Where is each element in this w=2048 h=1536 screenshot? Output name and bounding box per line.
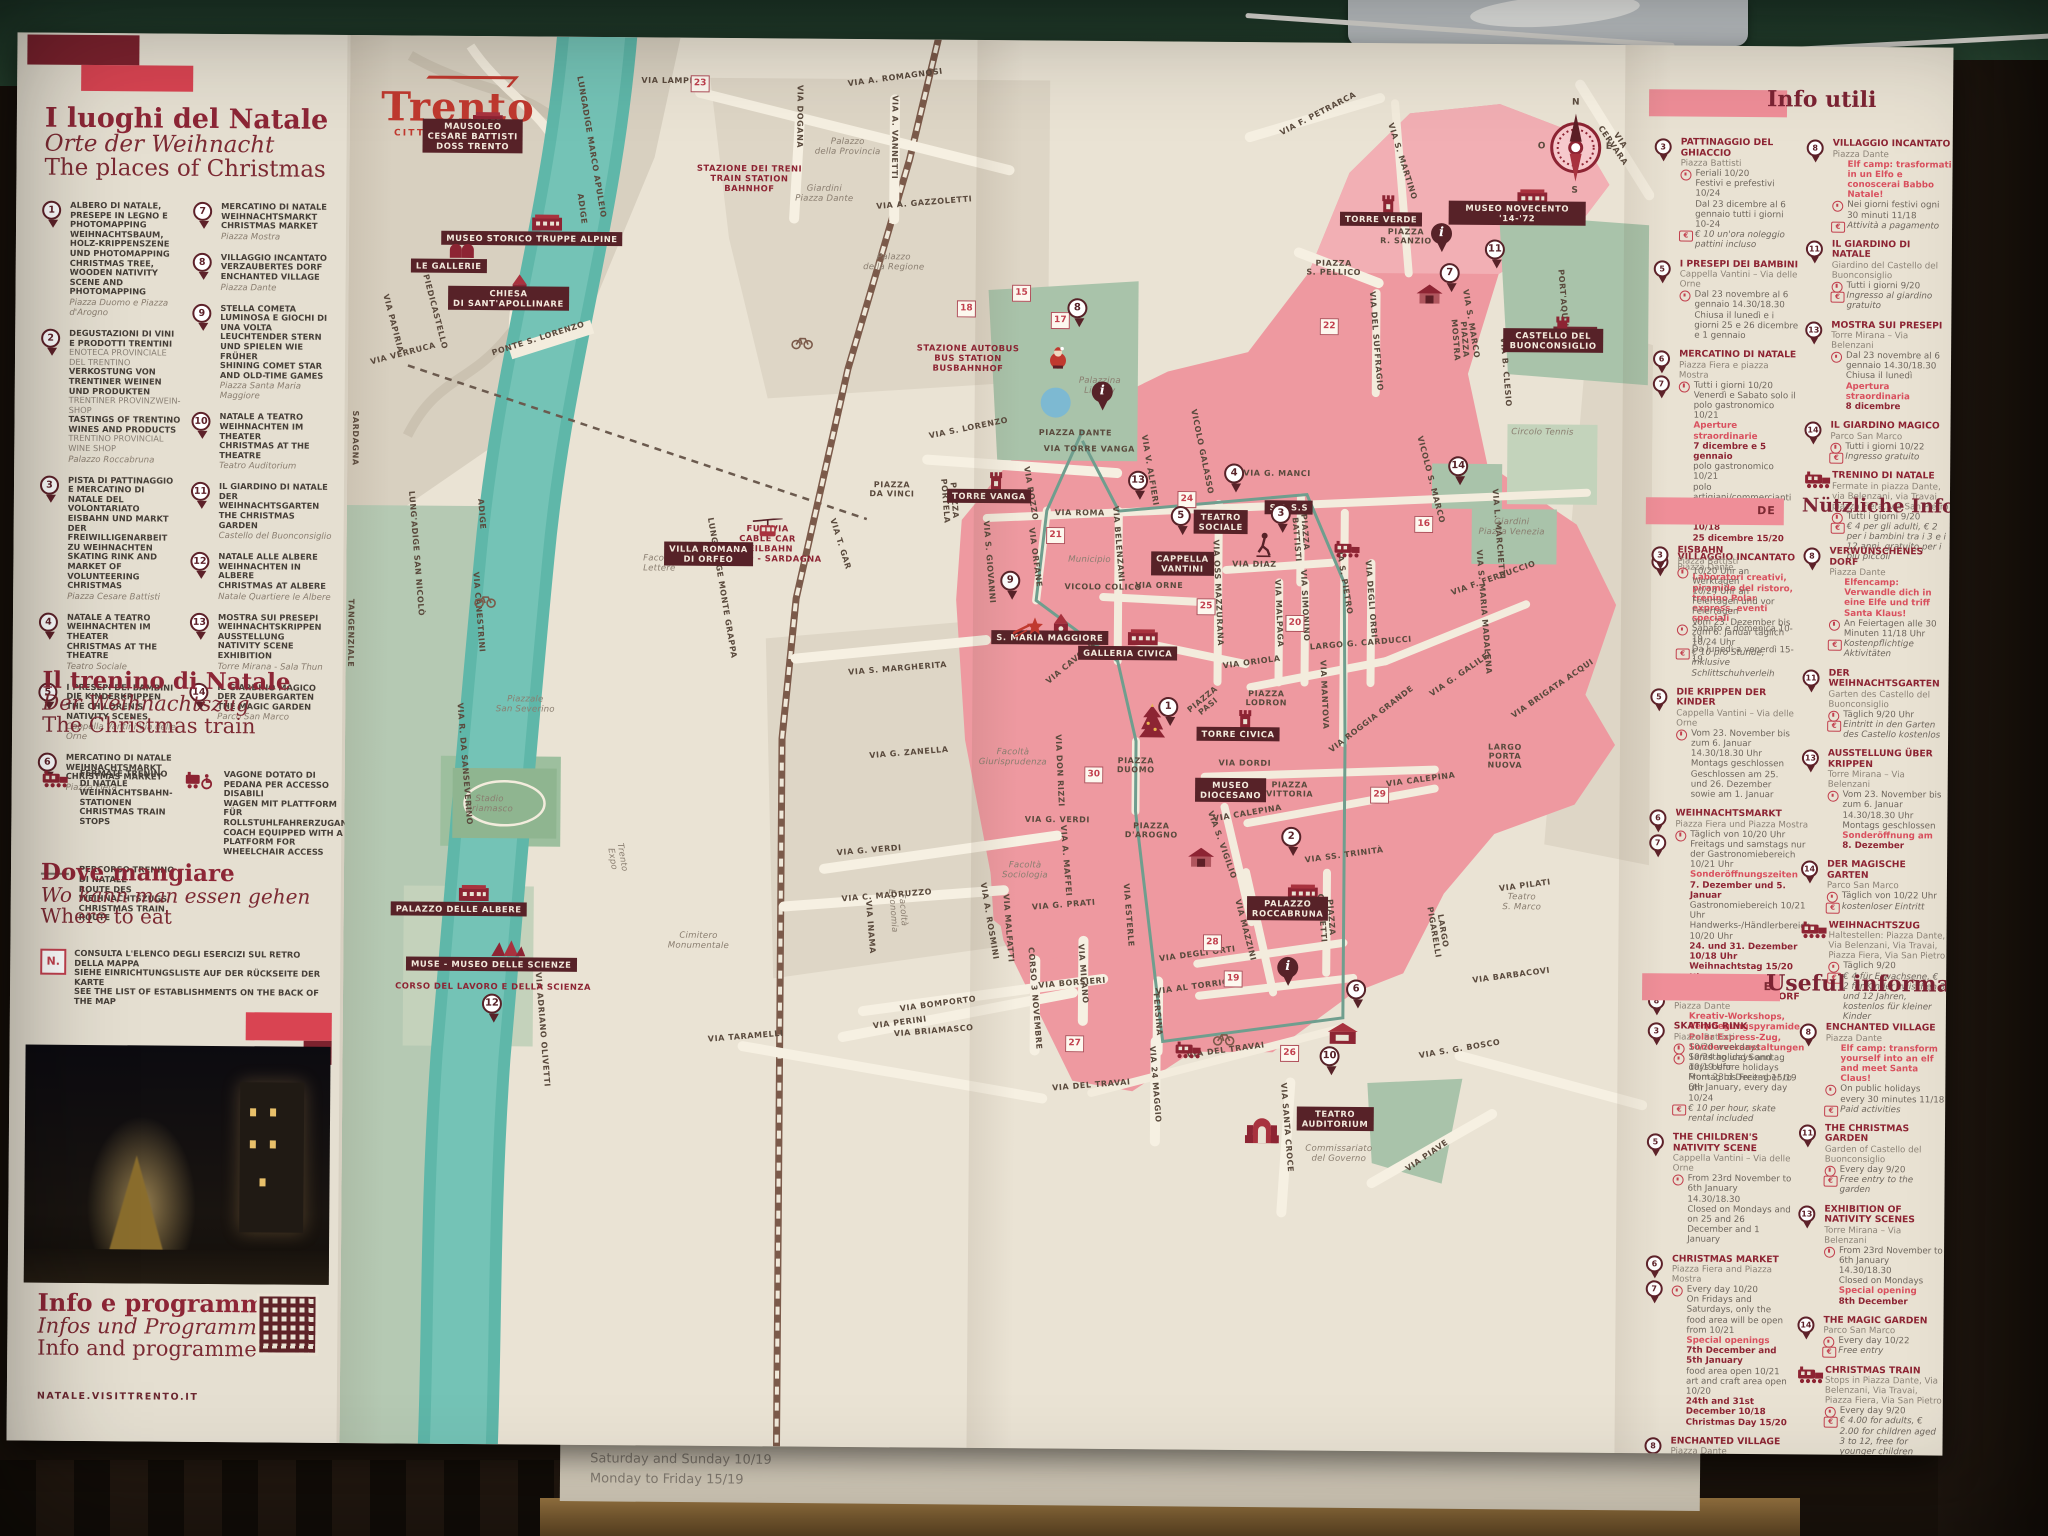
place-texts: VILLAGGIO INCANTATOVERZAUBERTES DORFENCH… (221, 253, 334, 294)
info-item-line: €Paid activities (1825, 1104, 1945, 1115)
euro-icon: € (1831, 221, 1845, 232)
street-label: Facoltà Giurisprudenza (979, 747, 1047, 768)
info-item-markers: 5 (1653, 259, 1674, 341)
street-label: Commissariato del Governo (1305, 1144, 1372, 1165)
info-item-line: €€ 10 pro Stunde, inklusive Schlittschuh… (1677, 648, 1797, 680)
place-text-line: Piazza Mostra (221, 232, 334, 243)
info-item: 3PATTINAGGIO DEL GHIACCIOPiazza Battisti… (1654, 137, 1801, 251)
eat-title: Dove mangiare Wo kann man essen gehen Wh… (41, 861, 311, 929)
landmark-badge: VILLA ROMANA DI ORFEO (664, 542, 753, 567)
place-texts: STELLA COMETA LUMINOSA E GIOCHI DI UNA V… (220, 304, 334, 403)
info-item-pin: 5 (1654, 260, 1672, 283)
info-item-pin: 6 (1649, 809, 1667, 832)
info-item-line: Chiusa il lunedì e i giorni 25 e 26 dice… (1679, 310, 1799, 342)
info-item-markers: 8 (1803, 546, 1824, 659)
info-item-line: Christmas Day 15/20 (1671, 1417, 1791, 1428)
train-wheelchair-icon (186, 772, 216, 790)
info-item-title: DIE KRIPPEN DER KINDER (1676, 687, 1796, 709)
place-texts: MERCATINO DI NATALEWEIHNACHTSMARKTCHRIST… (221, 202, 334, 243)
train-title-en: The Christmas train (42, 714, 290, 738)
map-place-pin: 9 (1000, 571, 1022, 600)
info-item-markers: 5 (1650, 687, 1671, 800)
place-text-line: EISBAHN UND MARKT DER FREIWILLIGENARBEIT… (67, 514, 180, 553)
landmark-badge: CASTELLO DEL BUONCONSIGLIO (1503, 328, 1603, 353)
info-point-pin: i (1277, 957, 1299, 987)
qr-code (259, 1296, 315, 1352)
place-text-line: TASTINGS OF TRENTINO WINES AND PRODUCTS (68, 415, 181, 435)
info-item-line: €Kostenpflichtige Aktivitäten (1829, 639, 1949, 660)
street-label: VIA DIAZ (1232, 559, 1277, 568)
poi-label: STAZIONE AUTOBUS BUS STATION BUSBAHNHOF (917, 342, 1020, 373)
landmark-badge: LE GALLERIE (411, 259, 487, 274)
section-title-it: Info utili (1767, 86, 1877, 113)
map-number-square: 23 (691, 75, 710, 92)
info-item-pin: 3 (1655, 138, 1673, 161)
info-item-line: Apertura straordinaria (1831, 381, 1951, 402)
street-label: VIA DORDI (1218, 758, 1271, 767)
map-place-pin: 2 (1281, 827, 1303, 856)
info-item: 14DER MAGISCHE GARTENParco San MarcoTägl… (1801, 860, 1947, 913)
info-item-line: 8 dicembre (1831, 402, 1951, 413)
euro-icon: € (1824, 1105, 1838, 1116)
info-item-line: €Attività a pagamento (1832, 220, 1952, 231)
website-url: NATALE.VISITTRENTO.IT (37, 1391, 199, 1403)
street-label: VIA G. VERDI (1025, 815, 1090, 825)
place-texts: ALBERO DI NATALE, PRESEPE IN LEGNO E PHO… (69, 201, 183, 319)
info-point-letter: i (1092, 381, 1113, 402)
place-text-line: CHRISTMAS AT THE THEATRE (219, 441, 332, 461)
info-item-body: ENCHANTED VILLAGEPiazza DanteElf camp: t… (1825, 1023, 1946, 1116)
landmark-badge: MUSE - MUSEO DELLE SCIENZE (406, 956, 577, 971)
map-pin-number: 12 (482, 994, 502, 1014)
place-pin-number: 9 (192, 303, 211, 322)
legend-place-item: 4NATALE A TEATROWEIHNACHTEN IM THEATERCH… (39, 612, 180, 672)
place-text-line: CHRISTMAS TREE, WOODEN NATIVITY SCENE AN… (69, 258, 182, 297)
info-item-pin: 5 (1650, 688, 1668, 711)
info-item-markers: 14 (1801, 860, 1821, 912)
street-label: PIAZZA DA VINCI (869, 480, 914, 498)
landmark-badge: PALAZZO DELLE ALBERE (391, 901, 527, 916)
info-item-line: Dal 23 novembre al 6 gennaio 14.30/18.30 (1831, 351, 1951, 372)
info-item-pin-number: 8 (1800, 1023, 1817, 1040)
info-item-place: Cappella Vantini – Via delle Orne (1676, 708, 1796, 729)
euro-icon: € (1827, 720, 1841, 731)
info-item-pin-number: 7 (1649, 834, 1666, 851)
street-label: VIA ROMA (1055, 508, 1105, 517)
map-place-pin: 10 (1319, 1046, 1341, 1075)
info-item-markers: 3 (1654, 137, 1675, 250)
place-pin-number: 4 (39, 612, 58, 631)
info-item-pin-number: 7 (1653, 375, 1670, 392)
info-item-body: THE CHRISTMAS GARDENGarden of Castello d… (1824, 1124, 1945, 1197)
place-text-line: CHRISTMAS AT THE THEATRE (67, 641, 180, 661)
map-number-square: 16 (1414, 516, 1433, 533)
map-base (339, 35, 1655, 1453)
info-item-title: MERCATINO DI NATALE (1679, 350, 1799, 361)
info-item-title: PATTINAGGIO DEL GHIACCIO (1681, 137, 1801, 159)
info-item-pin: 7 (1653, 375, 1671, 398)
map-place-pin: 12 (482, 994, 504, 1023)
place-texts: NATALE A TEATROWEIHNACHTEN IM THEATERCHR… (219, 412, 332, 472)
street-label: Facoltà Sociologia (1002, 860, 1048, 880)
info-item: 14THE MAGIC GARDENParco San MarcoEvery d… (1797, 1315, 1943, 1357)
places-title-en: The places of Christmas (44, 157, 328, 183)
street-label: VIA G. MANCI (1243, 469, 1311, 479)
street-label: VIA DOGANA (795, 85, 804, 148)
info-item-place: Torre Mirana – Via Belenzani (1831, 331, 1951, 352)
place-text-line: Piazza Cesare Battisti (67, 592, 180, 603)
info-item-pin: 6 (1653, 350, 1671, 373)
legend-place-item: 11IL GIARDINO DI NATALEDER WEIHNACHTSGAR… (191, 482, 332, 542)
place-pin: 7 (193, 202, 214, 229)
place-text-line: CHRISTMAS AT ALBERE (218, 581, 331, 591)
info-item-line: Freitags und samstags nur der Gastronomi… (1675, 839, 1811, 871)
info-point-letter: i (1277, 957, 1298, 978)
euro-icon: € (1828, 640, 1842, 651)
photo-tower (239, 1082, 304, 1232)
info-item-line: From 23rd November to 6th January 14.30/… (1672, 1174, 1792, 1206)
info-item-line: Elf camp: trasformati in un Elfo e conos… (1832, 159, 1952, 201)
street-label: PIAZZA LODRON (1246, 689, 1288, 707)
train-legend-line: COACH EQUIPPED WITH A PLATFORM FOR WHEEL… (223, 828, 354, 858)
place-pin: 4 (39, 612, 60, 639)
info-item-pin-number: 11 (1806, 240, 1823, 257)
info-item-line: Venerdì e Sabato solo il polo gastronomi… (1679, 390, 1799, 422)
euro-icon: € (1676, 649, 1690, 660)
train-legend-row: FERMATE TRENINO DI NATALEWEIHNACHTSBAHN-… (41, 769, 178, 856)
clock-icon (1831, 352, 1842, 363)
info-item-pin: 8 (1800, 1023, 1818, 1046)
info-item-line: Nei giorni festivi ogni 30 minuti 11/18 (1832, 200, 1952, 221)
place-pin-number: 13 (190, 612, 209, 631)
place-text-line: SKATING RINK AND MARKET OF VOLUNTEERING … (67, 552, 180, 591)
map-number-square: 25 (1197, 598, 1216, 615)
info-item-body: AUSSTELLUNG ÜBER KRIPPENTorre Mirana – V… (1827, 749, 1948, 852)
street-label: VIA A. VANNETTI (890, 95, 900, 179)
place-text-line: LEUCHTENDER STERN UND SPIELEN WIE FRÜHER (220, 332, 333, 362)
street-label: SARDAGNA (351, 410, 360, 465)
info-item-markers: 8 (1644, 1436, 1665, 1455)
landmark-badge: TORRE VERDE (1340, 212, 1422, 227)
train-legend-line: WAGEN MIT PLATTFORM FÜR ROLLSTUHLFAHRERZ… (223, 799, 354, 829)
train-wheelchair-icon (185, 770, 216, 857)
christmas-photo (24, 1045, 331, 1285)
street-label: VIA LAMPI (641, 76, 693, 85)
info-item-line: 10/24 Uhr an Feiertagen und vor Feiertag… (1677, 586, 1797, 618)
info-panel: Info utili 3PATTINAGGIO DEL GHIACCIOPiaz… (1644, 45, 1953, 1455)
info-item-body: DIE KRIPPEN DER KINDERCappella Vantini –… (1676, 687, 1797, 800)
info-item-pin: 11 (1802, 669, 1820, 692)
place-pin-number: 8 (193, 253, 212, 272)
info-item-body: DER WEIHNACHTSGARTENGarten des Castello … (1828, 668, 1949, 741)
info-item-markers: 14 (1797, 1315, 1817, 1356)
map-number-square: 26 (1280, 1045, 1299, 1062)
legend-place-item: 1ALBERO DI NATALE, PRESEPE IN LEGNO E PH… (41, 201, 183, 319)
place-text-line: DER WEIHNACHTSGARTEN (219, 492, 332, 512)
info-item-place: Cappella Vantini – Via delle Orne (1680, 270, 1800, 291)
info-item-pin-number: 3 (1651, 546, 1668, 563)
decor-block (246, 1012, 332, 1041)
compass-rose: N S E O (1543, 101, 1608, 193)
info-item-line: From 23rd December to 6th January, every… (1673, 1073, 1793, 1105)
info-item-line: 8. Dezember (1827, 841, 1947, 852)
place-pin: 3 (40, 475, 61, 502)
info-item: 3EISBAHNPiazza Battisti10/20 Uhr an Werk… (1651, 545, 1798, 679)
place-text-line: CHRISTMAS MARKET (221, 221, 334, 231)
info-item-line: Elf camp: transform yourself into an elf… (1825, 1043, 1945, 1085)
info-item-body: VILLAGGIO INCANTATOPiazza DanteElf camp:… (1832, 139, 1953, 232)
info-item-body: VERWUNSCHENES DORFPiazza DanteElfencamp:… (1829, 547, 1950, 661)
info-item-markers: 67 (1648, 808, 1669, 982)
landmark-badge: MUSEO NOVECENTO '14-'72 (1449, 201, 1586, 226)
street-label: PIAZZA R. SANZIO (1380, 227, 1432, 245)
place-pin-number: 11 (191, 482, 210, 501)
clock-icon (1676, 729, 1687, 740)
map-pin-number: 1 (1158, 697, 1178, 717)
euro-icon: € (1831, 523, 1845, 534)
place-text-line: Castello del Buonconsiglio (219, 531, 332, 542)
place-text-line: ALBERO DI NATALE, PRESEPE IN LEGNO E PHO… (70, 201, 183, 231)
train-icon (1800, 921, 1822, 942)
place-text-line: Piazza Dante (221, 283, 334, 294)
train-title: Il trenino di Natale Der Weihnachtszug T… (42, 669, 291, 739)
info-item-body: THE MAGIC GARDENParco San MarcoEvery day… (1823, 1315, 1943, 1357)
train-legend-line: CHRISTMAS TRAIN STOPS (79, 807, 177, 827)
map-number-square: 20 (1285, 615, 1304, 632)
map-pin-number: 13 (1128, 471, 1148, 491)
train-legend-line: VAGONE DOTATO DI PEDANA PER ACCESSO DISA… (224, 770, 355, 800)
info-item: 11DER WEIHNACHTSGARTENGarten des Castell… (1802, 668, 1949, 741)
street-label: Circolo Tennis (1511, 427, 1573, 437)
train-legend-texts: VAGONE DOTATO DI PEDANA PER ACCESSO DISA… (223, 770, 355, 857)
info-item-body: IL GIARDINO DI NATALEGiardino del Castel… (1831, 240, 1952, 313)
place-text-line: PISTA DI PATTINAGGIO E MERCATINO DI NATA… (68, 475, 181, 514)
trento-logo-mark (420, 76, 519, 88)
info-item-body: EISBAHNPiazza Battisti10/20 Uhr an Werkt… (1677, 545, 1798, 679)
info-item: 67CHRISTMAS MARKETPiazza Fiera and Piazz… (1645, 1254, 1792, 1428)
info-item-pin: 3 (1648, 1022, 1666, 1045)
info-item-line: Aperture straordinarie (1678, 421, 1798, 442)
euro-icon: € (1824, 1417, 1838, 1428)
poi-label: CORSO DEL LAVORO E DELLA SCIENZA (395, 980, 591, 992)
place-text-line: WEIHNACHTEN IM THEATER (219, 422, 332, 442)
info-item-line: Festivi e prefestivi 10/24 (1680, 179, 1800, 200)
place-text-line: STELLA COMETA LUMINOSA E GIOCHI DI UNA V… (220, 304, 333, 334)
map-number-square: 21 (1046, 527, 1065, 544)
info-item-line: Vom 23. Dezember bis zum 6. Januar tägli… (1677, 617, 1797, 649)
landmark-badge: MUSEO DIOCESANO (1195, 778, 1266, 803)
landmark-badge: S. MARIA MAGGIORE (991, 630, 1108, 645)
place-pin-number: 10 (191, 412, 210, 431)
info-item-line: art and craft area open 10/20 (1671, 1376, 1791, 1397)
info-item-pin-number: 11 (1802, 669, 1819, 686)
info-item-title: ENCHANTED VILLAGE (1826, 1023, 1946, 1034)
eat-note: N. CONSULTA L'ELENCO DEGLI ESERCIZI SUL … (40, 949, 320, 1009)
info-item-title: THE CHILDREN'S NATIVITY SCENE (1673, 1133, 1793, 1155)
landmark-badge: MAUSOLEO CESARE BATTISTI DOSS TRENTO (422, 119, 523, 154)
info-item-pin: 7 (1649, 834, 1667, 857)
legend-panel: I luoghi del Natale Orte der Weihnacht T… (7, 32, 351, 1443)
info-item-body: THE CHILDREN'S NATIVITY SCENECappella Va… (1672, 1133, 1793, 1246)
train-legend-line: WEIHNACHTSBAHN-STATIONEN (79, 788, 177, 808)
euro-icon: € (1672, 1104, 1686, 1115)
euro-icon: € (1826, 902, 1840, 913)
place-texts: PISTA DI PATTINAGGIO E MERCATINO DI NATA… (67, 475, 181, 602)
info-item: 11IL GIARDINO DI NATALEGiardino del Cast… (1805, 239, 1952, 312)
info-item-place: Garden of Castello del Buonconsiglio (1825, 1145, 1945, 1166)
info-item-pin: 3 (1651, 546, 1669, 569)
place-pin: 12 (190, 552, 211, 579)
info-item-pin: 5 (1647, 1133, 1665, 1156)
train-legend-texts: FERMATE TRENINO DI NATALEWEIHNACHTSBAHN-… (79, 769, 178, 856)
street-label: Teatro S. Marco (1502, 892, 1541, 912)
map-place-pin: 8 (1067, 298, 1089, 327)
info-item-markers: 13 (1798, 1204, 1819, 1306)
place-text-line: WEIHNACHTSBAUM, HOLZ-KRIPPENSZENE UND PH… (70, 230, 183, 260)
train-icon (1175, 1042, 1203, 1059)
info-item-line: 8th December (1824, 1296, 1944, 1307)
info-item: 8VILLAGGIO INCANTATOPiazza DanteElf camp… (1806, 138, 1953, 231)
info-item-pin-number: 8 (1807, 139, 1824, 156)
landmark-badge: PALAZZO ROCCABRUNA (1247, 896, 1329, 921)
info-item-place: Torre Mirana – Via Belenzani (1828, 770, 1948, 791)
info-item-markers: 14 (1804, 421, 1824, 462)
info-item-line: 10/24 holidays and days before holidays (1673, 1052, 1793, 1073)
info-item-title: DER WEIHNACHTSGARTEN (1828, 668, 1948, 690)
clock-icon (1673, 1175, 1684, 1186)
info-item-pin: 7 (1646, 1280, 1664, 1303)
euro-icon: € (1822, 1347, 1836, 1358)
place-text-line: DEGUSTAZIONI DI VINI E PRODOTTI TRENTINI (69, 329, 182, 349)
landmark-badge: CHIESA DI SANT'APOLLINARE (448, 286, 569, 311)
street-label: Cimitero Monumentale (668, 931, 729, 951)
info-item-markers: 67 (1645, 1254, 1666, 1427)
map-number-square: 29 (1370, 787, 1389, 804)
place-pin: 8 (193, 253, 214, 280)
info-item-pin: 6 (1646, 1255, 1664, 1278)
info-item: 14IL GIARDINO MAGICOParco San MarcoTutti… (1804, 421, 1950, 463)
info-item-line: 10/20 Uhr an Werktagen (1677, 566, 1797, 587)
clock-icon (1679, 291, 1690, 302)
info-item-pin-number: 6 (1653, 350, 1670, 367)
info-item-pin-number: 7 (1646, 1280, 1663, 1297)
map-place-pin: 11 (1485, 239, 1507, 268)
map-sheet: I luoghi del Natale Orte der Weihnacht T… (7, 32, 1954, 1455)
place-pin: 11 (191, 482, 212, 509)
info-item-markers: 11 (1802, 668, 1823, 740)
train-icon (1797, 1366, 1825, 1383)
landmark-badge: TORRE CIVICA (1197, 727, 1280, 742)
place-text-line: VERKOSTUNG VON TRENTINER WEINEN UND PROD… (69, 367, 182, 397)
map-pin-number: 4 (1224, 463, 1244, 483)
decor-block (27, 34, 139, 65)
legend-place-item: 8VILLAGGIO INCANTATOVERZAUBERTES DORFENC… (193, 253, 334, 294)
table-edge (1938, 60, 2048, 1536)
info-item-body: CHRISTMAS TRAINStops in Piazza Dante, Vi… (1824, 1365, 1943, 1455)
place-pin-number: 7 (193, 202, 212, 221)
place-text-line: NATIVITY SCENE EXHIBITION (218, 641, 331, 661)
info-item: 13MOSTRA SUI PRESEPITorre Mirana – Via B… (1805, 320, 1952, 413)
info-item-title: TRENINO DI NATALE (1832, 471, 1950, 482)
info-item-pin-number: 8 (1644, 1437, 1661, 1454)
info-item-pin-number: 8 (1803, 547, 1820, 564)
info-item-line: €€ 4.00 for adults, € 2.00 for children … (1824, 1416, 1942, 1456)
info-item-pin-number: 13 (1798, 1205, 1815, 1222)
street-label: Municipio (1068, 555, 1111, 565)
info-item-title: EXHIBITION OF NATIVITY SCENES (1824, 1204, 1944, 1226)
street-label: PIAZZA VITTORIA (1266, 780, 1313, 798)
street-label: PIAZZA S. PELLICO (1306, 259, 1361, 277)
info-item-line: Vom 23. November bis zum 6. Januar 14.30… (1827, 790, 1947, 822)
map-number-square: 19 (1224, 970, 1243, 987)
info-item-markers: 13 (1801, 749, 1822, 851)
info-item-pin: 13 (1802, 750, 1820, 773)
city-map: Trento CITTÀ DEL NATALE N S E O VIA LAMP… (339, 35, 1655, 1453)
info-item-pin-number: 3 (1655, 138, 1672, 155)
info-item-body: DER MAGISCHE GARTENParco San MarcoTäglic… (1827, 860, 1947, 912)
info-item-title: IL GIARDINO DI NATALE (1832, 240, 1952, 262)
map-place-pin: 7 (1440, 263, 1462, 292)
place-text-line: TRENTINO PROVINCIAL WINE SHOP (68, 434, 181, 454)
second-sheet-line: Monday to Friday 15/19 (590, 1469, 744, 1489)
clock-icon (1828, 791, 1839, 802)
train-icon (42, 771, 70, 788)
map-number-square: 30 (1084, 766, 1103, 783)
info-item-pin-number: 13 (1802, 750, 1819, 767)
map-place-pin: 3 (1271, 504, 1293, 533)
info-item-line: 7 dicembre e 5 gennaio (1678, 441, 1798, 462)
place-text-line: ENOTECA PROVINCIALE DEL TRENTINO (69, 348, 182, 368)
legend-place-item: 3PISTA DI PATTINAGGIO E MERCATINO DI NAT… (39, 475, 181, 602)
info-item-line: Handwerks-/Händlerbereich 10/20 Uhr (1674, 921, 1810, 942)
euro-icon: € (1830, 292, 1844, 303)
place-pin-number: 1 (42, 201, 61, 220)
map-pin-number: 3 (1271, 504, 1291, 524)
info-item-title: VERWUNSCHENES DORF (1829, 547, 1949, 569)
info-item-line: On Fridays and Saturdays, only the food … (1671, 1295, 1791, 1337)
map-pin-number: 14 (1448, 456, 1468, 476)
info-item-pin: 13 (1798, 1205, 1816, 1228)
map-number-square: 18 (957, 300, 976, 317)
place-texts: MOSTRA SUI PRESEPIWEIHNACHTSKRIPPEN AUSS… (218, 613, 331, 673)
info-item-line: €Ingresso al giardino gratuito (1831, 291, 1951, 312)
section-title-en: Useful information (1766, 970, 1953, 998)
info-item-title: VILLAGGIO INCANTATO (1833, 139, 1953, 150)
info-item-markers: 13 (1805, 320, 1826, 412)
info-item: 3SKATING RINKPiazza Battisti10/20 weekda… (1647, 1021, 1794, 1124)
map-pin-number: 7 (1440, 263, 1460, 283)
info-item-body: MOSTRA SUI PRESEPITorre Mirana – Via Bel… (1831, 320, 1952, 413)
info-item-markers: 5 (1646, 1132, 1667, 1245)
info-item-title: DER MAGISCHE GARTEN (1827, 860, 1947, 882)
info-item-place: Piazza Fiera e piazza Mostra (1679, 360, 1799, 381)
street-label: PIAZZA DANTE (1039, 428, 1112, 438)
info-item-place: Giardino del Castello del Buonconsiglio (1832, 261, 1952, 282)
info-item-pin-number: 14 (1804, 422, 1821, 439)
place-pin-number: 3 (40, 475, 59, 494)
map-pin-number: 5 (1171, 506, 1191, 526)
info-item-line: Closed on Mondays and on 25 and 26 Decem… (1672, 1204, 1792, 1246)
eat-badge: N. (40, 949, 66, 975)
train-icon (1804, 472, 1826, 493)
street-label: VIA ORNE (1135, 581, 1183, 590)
info-item-place: Haltestellen: Piazza Dante, Via Belenzan… (1828, 931, 1946, 962)
info-item-line: Vom 23. November bis zum 6. Januar 14.30… (1676, 728, 1796, 760)
info-item-line: Elfencamp: Verwandle dich in eine Elfe u… (1829, 578, 1949, 620)
photo-scene: Saturday and Sunday 10/19 Monday to Frid… (0, 0, 2048, 1536)
clock-icon (1829, 619, 1840, 630)
info-title: Info e programma Infos und Programm Info… (37, 1291, 281, 1362)
